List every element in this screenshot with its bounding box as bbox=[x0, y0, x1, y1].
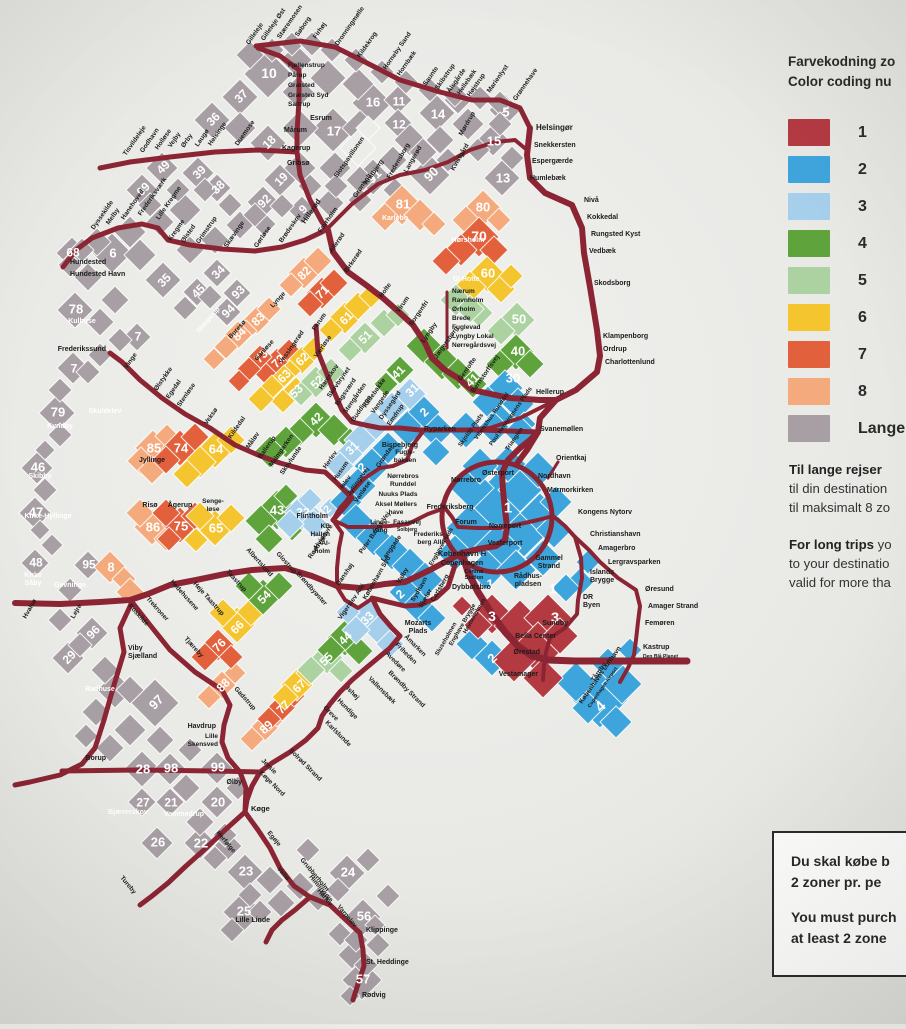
legend-color-swatch bbox=[788, 230, 830, 257]
legend-item-label: Lange re bbox=[858, 420, 906, 438]
station-label: Kagerup bbox=[282, 145, 310, 152]
legend-item-label: 6 bbox=[858, 309, 867, 327]
station-label: Kirke bbox=[24, 572, 42, 579]
station-label: Nørrebros bbox=[387, 473, 419, 480]
info-paragraph-english: For long trips yo to your destinatio val… bbox=[789, 535, 906, 592]
zone-tile bbox=[101, 286, 129, 314]
zone-number-label: 98 bbox=[164, 761, 178, 776]
station-label: Gadstrup bbox=[233, 686, 258, 712]
zone-tile bbox=[376, 884, 400, 908]
station-label: Ølby bbox=[226, 779, 242, 786]
station-label: Amager Strand bbox=[648, 603, 698, 610]
info-da-line3: til maksimalt 8 zo bbox=[789, 500, 890, 515]
zone-number-label: 14 bbox=[431, 107, 446, 122]
station-label: pladsen bbox=[515, 581, 541, 588]
station-label: Høje Taastrup bbox=[192, 581, 226, 618]
zone-number-label: 30 bbox=[506, 371, 520, 386]
zone-number-label: 7 bbox=[71, 361, 78, 375]
station-label: Nuuks Plads bbox=[378, 491, 417, 498]
station-label: Flintholm bbox=[297, 513, 329, 520]
station-label: Østerport bbox=[482, 470, 515, 477]
zone-number-label: 74 bbox=[174, 441, 189, 456]
station-label: Charlottenlund bbox=[605, 359, 655, 366]
station-label: Fugle- bbox=[395, 449, 415, 456]
ticket-notice-box: Du skal købe b 2 zoner pr. pe You must p… bbox=[772, 831, 906, 977]
info-text: Til lange rejser til din destination til… bbox=[789, 460, 906, 610]
station-label: Plads bbox=[409, 628, 428, 635]
station-label: have bbox=[389, 509, 404, 516]
station-label: Ryparken bbox=[424, 426, 456, 433]
legend-item-label: 5 bbox=[858, 272, 867, 290]
station-label: Rødvig bbox=[362, 992, 386, 999]
legend-color-swatch bbox=[788, 304, 830, 331]
station-label: Svanemøllen bbox=[540, 426, 583, 433]
station-label: Esrum bbox=[310, 115, 332, 122]
zone-number-label: 28 bbox=[136, 762, 150, 777]
station-label: Lergravsparken bbox=[608, 559, 661, 566]
zone-number-label: 8 bbox=[107, 560, 114, 575]
legend-item-label: 7 bbox=[858, 346, 867, 364]
legend-item-2: 2 bbox=[788, 151, 906, 188]
legend-item-label: 8 bbox=[858, 383, 867, 401]
zone-number-label: 64 bbox=[209, 442, 224, 457]
notice-en-line2: at least 2 zone bbox=[791, 928, 906, 949]
station-label: Hundested Havn bbox=[70, 271, 125, 278]
station-label: Ørholm bbox=[452, 306, 475, 313]
station-label: Nørrebro bbox=[451, 477, 481, 484]
station-label: Helsingør bbox=[536, 123, 573, 132]
station-label: Bella Center bbox=[515, 633, 556, 640]
station-label: Gammel bbox=[535, 555, 563, 562]
zone-number-label: 5 bbox=[502, 105, 509, 120]
station-label: Hellerup bbox=[536, 389, 564, 396]
legend-color-swatch bbox=[788, 341, 830, 368]
zone-number-label: 95 bbox=[82, 557, 96, 571]
notice-da-line2: 2 zoner pr. pe bbox=[791, 872, 906, 893]
station-label: Nørregårdsvej bbox=[452, 341, 496, 349]
station-label: Ravnholm bbox=[452, 297, 484, 304]
station-label: Nærum bbox=[452, 288, 475, 295]
zone-map-svg: 1112222233430405060708081313141414232433… bbox=[0, 0, 760, 1024]
station-label: Vinge bbox=[123, 351, 139, 370]
station-label: Aksel Møllers bbox=[375, 501, 417, 508]
info-da-line2: til din destination bbox=[789, 481, 887, 496]
zone-number-label: 1 bbox=[549, 582, 556, 597]
station-label: Risø bbox=[142, 502, 158, 509]
station-label: Saltrup bbox=[288, 101, 310, 108]
station-label: Byen bbox=[583, 602, 600, 609]
station-label: Islands bbox=[590, 569, 614, 576]
zone-number-label: 15 bbox=[487, 134, 501, 149]
zone-number-label: 22 bbox=[194, 836, 208, 851]
station-label: Strand bbox=[538, 563, 560, 570]
station-label: Vedbæk bbox=[589, 248, 616, 255]
zone-number-label: 13 bbox=[496, 171, 510, 186]
station-label: Havdrup bbox=[188, 723, 216, 730]
legend-items: 12345678Lange re bbox=[788, 114, 906, 447]
legend-color-swatch bbox=[788, 415, 830, 442]
zone-number-label: 85 bbox=[147, 441, 161, 456]
zone-number-label: 23 bbox=[239, 864, 253, 879]
station-label: Mårum bbox=[284, 126, 307, 134]
station-label: Kirke-Hyllinge bbox=[24, 513, 71, 520]
station-label: Såby bbox=[25, 579, 42, 587]
station-label: Lille bbox=[205, 733, 218, 740]
station-label: Amagerbro bbox=[598, 545, 635, 552]
station-label: Skuldelev bbox=[89, 408, 122, 415]
station-label: Skodsborg bbox=[594, 280, 631, 287]
station-label: Klippinge bbox=[366, 927, 398, 934]
station-label: Kyndby bbox=[47, 423, 73, 430]
zone-number-label: 20 bbox=[211, 795, 225, 810]
legend-item-label: 4 bbox=[858, 235, 867, 253]
station-label: St. Heddinge bbox=[366, 959, 409, 966]
legend-item-label: 3 bbox=[858, 198, 867, 216]
station-label: Brede bbox=[452, 315, 471, 322]
zone-number-label: 12 bbox=[392, 117, 406, 131]
zone-number-label: 48 bbox=[29, 555, 43, 569]
station-label: Frederikssund bbox=[58, 346, 106, 353]
station-label: Den Blå Planet bbox=[643, 653, 678, 660]
legend-color-swatch bbox=[788, 156, 830, 183]
zone-number-label: 1 bbox=[504, 499, 512, 516]
legend-item-3: 3 bbox=[788, 188, 906, 225]
station-label: Solrød Strand bbox=[288, 747, 323, 782]
station-label: Linde- bbox=[370, 519, 390, 526]
station-label: Femøren bbox=[645, 620, 675, 627]
legend-title-danish: Farvekodning zo bbox=[788, 52, 906, 72]
station-label: Slangerup bbox=[195, 306, 221, 334]
notice-en-line1: You must purch bbox=[791, 907, 906, 928]
zone-number-label: 78 bbox=[69, 302, 83, 317]
station-label: Karlebo bbox=[382, 215, 408, 222]
station-label: Snekkersten bbox=[534, 142, 576, 149]
legend-color-swatch bbox=[788, 119, 830, 146]
legend-color-swatch bbox=[788, 378, 830, 405]
station-label: Firhøj bbox=[312, 21, 328, 40]
zone-tile bbox=[41, 534, 63, 556]
station-label: Orientkaj bbox=[556, 455, 586, 462]
zone-tile bbox=[422, 438, 450, 466]
station-label: Køge bbox=[251, 804, 270, 813]
station-label: Klampenborg bbox=[603, 333, 648, 340]
zone-number-label: 26 bbox=[151, 835, 165, 850]
station-label: DR bbox=[583, 594, 593, 601]
info-en-bold: For long trips bbox=[789, 537, 874, 552]
station-label: Runddel bbox=[390, 481, 416, 488]
station-label: Senge- bbox=[202, 498, 224, 505]
zone-number-label: 68 bbox=[66, 245, 80, 259]
zone-number-label: 65 bbox=[209, 521, 223, 536]
legend-color-swatch bbox=[788, 267, 830, 294]
station-label: Tureby bbox=[118, 875, 137, 896]
station-label: Bjæverskov bbox=[108, 809, 148, 816]
legend: Farvekodning zo Color coding nu 12345678… bbox=[788, 52, 906, 447]
station-label: Radhuse bbox=[85, 686, 115, 693]
station-label: Ågerup bbox=[168, 500, 193, 509]
legend-item-4: 4 bbox=[788, 225, 906, 262]
station-label: Kulhuse bbox=[68, 318, 96, 325]
zone-number-label: 81 bbox=[396, 197, 410, 212]
zone-number-label: 27 bbox=[136, 795, 150, 809]
legend-title-english: Color coding nu bbox=[788, 72, 906, 92]
station-label: Græsted bbox=[288, 82, 315, 89]
station-label: Fasanvej bbox=[393, 519, 421, 526]
station-label: løse bbox=[206, 506, 219, 513]
zone-map-area: 1112222233430405060708081313141414232433… bbox=[0, 0, 760, 1024]
station-label: Frederiks- bbox=[414, 531, 445, 538]
zone-number-label: 21 bbox=[164, 795, 178, 809]
station-label: Jyllinge bbox=[139, 457, 165, 464]
station-label: Ørby bbox=[180, 132, 195, 149]
station-label: bakken bbox=[394, 457, 416, 464]
station-label: Kongens Nytorv bbox=[578, 509, 632, 516]
info-paragraph-danish: Til lange rejser til din destination til… bbox=[789, 460, 906, 517]
zone-number-label: 75 bbox=[174, 519, 188, 534]
zone-number-label: 79 bbox=[51, 405, 65, 420]
station-label: Forum bbox=[455, 519, 477, 526]
station-label: Frederiksberg bbox=[427, 504, 474, 511]
station-label: Marienlyst bbox=[486, 63, 511, 94]
station-label: Skibby bbox=[29, 473, 52, 480]
station-label: Rådhus- bbox=[514, 572, 543, 580]
zone-number-label: 10 bbox=[261, 65, 277, 81]
zone-number-label: 43 bbox=[270, 503, 284, 518]
info-en-rest: yo bbox=[874, 537, 892, 552]
legend-color-swatch bbox=[788, 193, 830, 220]
zone-tile bbox=[296, 838, 320, 862]
zone-number-label: 16 bbox=[366, 95, 380, 110]
station-label: Lyngby Lokal bbox=[452, 333, 494, 340]
station-label: Vesterport bbox=[488, 540, 523, 547]
zone-number-label: 50 bbox=[512, 312, 526, 327]
zone-number-label: 60 bbox=[481, 266, 495, 281]
station-label: Solbjerg bbox=[397, 527, 417, 533]
station-label: Marmorkirken bbox=[547, 487, 593, 494]
station-label: Nivå bbox=[584, 196, 599, 204]
station-label: Karlslunde bbox=[324, 719, 353, 748]
station-label: København H bbox=[438, 549, 486, 558]
station-label: Gribsø bbox=[287, 160, 310, 167]
station-label: Hørsholm bbox=[452, 237, 485, 244]
station-label: Hundested bbox=[70, 259, 106, 266]
zone-tile bbox=[114, 714, 146, 746]
zone-number-label: 17 bbox=[327, 124, 341, 139]
station-label: Birkerød bbox=[343, 248, 364, 274]
station-label: Øresund bbox=[645, 586, 674, 593]
zone-number-label: 7 bbox=[135, 329, 142, 343]
zone-tile bbox=[48, 378, 72, 402]
zone-number-label: 6 bbox=[109, 246, 116, 261]
station-label: Sjælland bbox=[128, 653, 157, 660]
legend-item-1: 1 bbox=[788, 114, 906, 151]
station-label: Græsted Syd bbox=[288, 92, 328, 99]
station-label: Station bbox=[465, 575, 484, 581]
station-label: København Syd bbox=[362, 555, 393, 601]
info-da-bold: Til lange rejser bbox=[789, 462, 882, 477]
legend-item-label: 2 bbox=[858, 161, 867, 179]
station-label: Glostrup bbox=[275, 551, 298, 576]
station-label: Humlebæk bbox=[530, 175, 566, 182]
station-label: Dronningmølle bbox=[334, 5, 366, 47]
station-label: Borup bbox=[85, 755, 106, 762]
station-label: Rungsted Kyst bbox=[591, 231, 641, 238]
station-label: Gevninge bbox=[54, 582, 86, 589]
zone-number-label: 24 bbox=[341, 865, 356, 880]
zone-number-label: 3 bbox=[488, 608, 496, 624]
station-label: Kastrup bbox=[643, 644, 669, 651]
rail-line bbox=[62, 770, 258, 772]
zone-number-label: 57 bbox=[356, 972, 370, 987]
station-label: Grønnehave bbox=[512, 67, 540, 102]
legend-item-6: 6 bbox=[788, 299, 906, 336]
station-label: Christianshavn bbox=[590, 531, 641, 538]
legend-item-5: 5 bbox=[788, 262, 906, 299]
station-label: Veksø bbox=[203, 407, 220, 426]
station-label: Nordhavn bbox=[538, 473, 571, 480]
station-label: Copenhagen bbox=[441, 560, 483, 567]
station-label: Sorgenfri bbox=[408, 299, 430, 327]
station-label: Dybbølsbro bbox=[452, 584, 491, 591]
zone-number-label: 80 bbox=[476, 200, 490, 215]
zone-number-label: 56 bbox=[357, 909, 371, 924]
station-label: Ordrup bbox=[603, 346, 627, 353]
station-label: vang bbox=[372, 527, 387, 534]
station-label: Espergærde bbox=[532, 158, 573, 165]
station-label: Sundby bbox=[542, 620, 568, 627]
station-label: Brygge bbox=[590, 577, 614, 584]
station-label: Kokkedal bbox=[587, 214, 618, 221]
zone-tile bbox=[146, 726, 174, 754]
station-label: Fjellenstrup bbox=[288, 62, 325, 69]
station-label: Gl Holte bbox=[453, 276, 480, 283]
zone-number-label: 99 bbox=[211, 760, 225, 775]
zone-number-label: 86 bbox=[146, 520, 160, 535]
info-en-line3: valid for more tha bbox=[789, 575, 891, 590]
notice-da-line1: Du skal købe b bbox=[791, 851, 906, 872]
zone-tile bbox=[366, 933, 390, 957]
station-label: Pårup bbox=[288, 71, 306, 79]
station-label: Ørestad bbox=[514, 649, 540, 656]
legend-item-label: 1 bbox=[858, 124, 867, 142]
station-label: Nørreport bbox=[489, 523, 522, 530]
station-label: Skensved bbox=[188, 741, 218, 748]
legend-item-7: 7 bbox=[788, 336, 906, 373]
station-label: Viby bbox=[128, 645, 143, 652]
station-label: Vemmedrup bbox=[164, 811, 204, 818]
zone-tile bbox=[48, 608, 72, 632]
station-label: Ishøj bbox=[345, 685, 361, 701]
station-label: Vestamager bbox=[499, 671, 539, 678]
legend-item-8: 8 bbox=[788, 373, 906, 410]
station-label: Mozarts bbox=[405, 620, 432, 627]
info-en-line2: to your destinatio bbox=[789, 556, 889, 571]
zone-number-label: 11 bbox=[393, 94, 406, 108]
legend-item-lange-re: Lange re bbox=[788, 410, 906, 447]
station-label: Lille Linde bbox=[235, 917, 270, 924]
station-label: Kildekrog bbox=[356, 31, 379, 60]
zone-number-label: 40 bbox=[511, 344, 525, 359]
